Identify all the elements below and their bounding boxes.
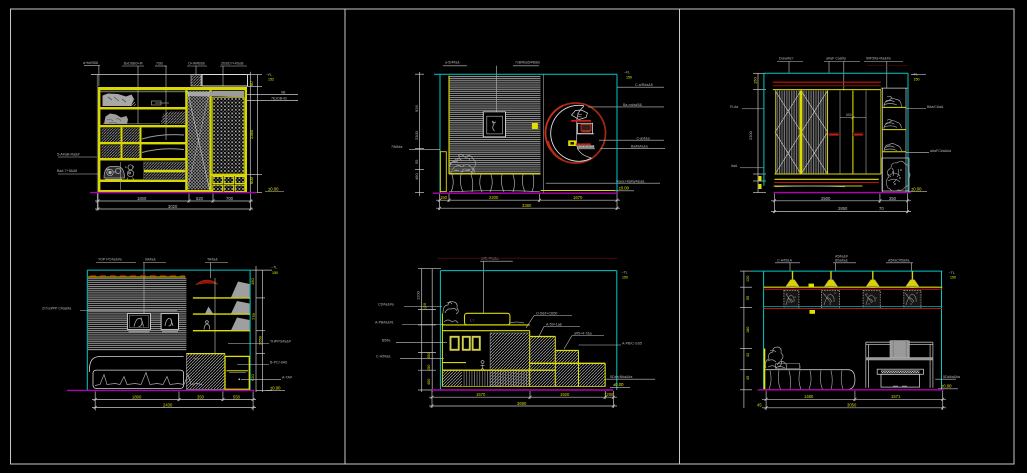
svg-text:700: 700 xyxy=(226,196,234,201)
svg-text:a#aF Ca&#y: a#aF Ca&#y xyxy=(826,57,846,61)
svg-text:±0.00: ±0.00 xyxy=(911,187,922,192)
svg-text:A-TA#: A-TA# xyxy=(282,375,292,379)
svg-text:42: 42 xyxy=(746,353,750,357)
svg-text:150: 150 xyxy=(440,195,448,200)
svg-text:O-5&#+CB5F: O-5&#+CB5F xyxy=(536,311,558,315)
svg-text:150: 150 xyxy=(950,276,956,280)
svg-text:ZBSD?+#SuB: ZBSD?+#SuB xyxy=(221,62,244,66)
svg-text:THPPG#a&#: THPPG#a&# xyxy=(270,340,291,344)
svg-text:1570: 1570 xyxy=(476,392,486,397)
svg-text:±0.00: ±0.00 xyxy=(619,185,630,190)
svg-text:1.7: 1.7 xyxy=(470,319,475,323)
svg-text:9A#a&: 9A#a& xyxy=(145,258,156,262)
svg-text:5#F5#a+#a&#a: 5#F5#a+#a&#a xyxy=(866,57,891,61)
svg-text:350: 350 xyxy=(197,394,205,399)
svg-text:2300: 2300 xyxy=(748,130,753,140)
svg-text:926: 926 xyxy=(414,105,419,112)
svg-text:350: 350 xyxy=(889,196,897,201)
svg-text:150: 150 xyxy=(272,271,278,275)
svg-text:C-a/R#a&5: C-a/R#a&5 xyxy=(635,83,653,87)
svg-text:2850: 2850 xyxy=(838,206,848,211)
svg-text:150: 150 xyxy=(914,78,920,82)
svg-text:120: 120 xyxy=(746,276,750,282)
svg-text:(200: (200 xyxy=(605,392,614,397)
svg-text:9B: 9B xyxy=(281,91,286,95)
svg-text:TOP PC#a&#a: TOP PC#a&#a xyxy=(98,258,122,262)
svg-text:7xB#Ba5/#B&B: 7xB#Ba5/#B&B xyxy=(515,61,540,65)
svg-text:Ba-m#a#5&: Ba-m#a#5& xyxy=(623,103,643,107)
svg-text:5/axx+#a#a/4&a&: 5/axx+#a#a/4&a& xyxy=(616,179,645,183)
svg-text:2300: 2300 xyxy=(414,130,419,140)
svg-text:460: 460 xyxy=(414,173,419,180)
svg-text:150: 150 xyxy=(250,278,255,285)
svg-text:±0.00: ±0.00 xyxy=(270,385,281,390)
svg-text:~FL: ~FL xyxy=(624,71,630,75)
svg-text:O+W#BSb: O+W#BSb xyxy=(188,62,205,66)
svg-text:1200: 1200 xyxy=(416,290,421,300)
svg-text:2500: 2500 xyxy=(821,196,831,201)
svg-text:Ba#a#a&a: Ba#a#a&a xyxy=(631,145,648,149)
svg-text:3050: 3050 xyxy=(847,403,857,408)
svg-text:70: 70 xyxy=(879,206,884,211)
svg-text:C-A#5&A: C-A#5&A xyxy=(777,258,793,262)
svg-text:#a&: #a& xyxy=(731,164,738,168)
svg-text:CD#a&#a: CD#a&#a xyxy=(378,303,394,307)
svg-text:~TL: ~TL xyxy=(271,266,277,270)
svg-text:Drew#a?: Drew#a? xyxy=(779,57,793,61)
svg-text:±0.00: ±0.00 xyxy=(941,384,952,389)
svg-text:7SB: 7SB xyxy=(156,62,163,66)
svg-text:55: 55 xyxy=(414,159,419,164)
svg-text:1571: 1571 xyxy=(891,394,901,399)
svg-text:C-a/4&a: C-a/4&a xyxy=(637,136,650,140)
svg-text:±0.00: ±0.00 xyxy=(268,187,279,192)
svg-text:600: 600 xyxy=(846,113,852,117)
svg-text:2350: 2350 xyxy=(249,129,254,139)
svg-text:45: 45 xyxy=(746,376,750,380)
svg-text:7W8#a: 7W8#a xyxy=(391,145,402,149)
svg-text:3380: 3380 xyxy=(522,203,532,208)
svg-text:2200: 2200 xyxy=(489,195,499,200)
svg-text:2/7xx#PP C#a&#a: 2/7xx#PP C#a&#a xyxy=(42,306,71,310)
svg-text:1670: 1670 xyxy=(573,195,583,200)
svg-text:1920: 1920 xyxy=(560,392,570,397)
svg-text:45: 45 xyxy=(757,403,762,408)
svg-text:C-A5#a&: C-A5#a& xyxy=(376,355,391,359)
svg-text:3020: 3020 xyxy=(168,204,178,209)
svg-text:TA#a&: TA#a& xyxy=(207,258,218,262)
svg-text:1800: 1800 xyxy=(132,394,142,399)
svg-text:550: 550 xyxy=(233,394,241,399)
svg-text:FL#a: FL#a xyxy=(730,105,738,109)
svg-text:150: 150 xyxy=(622,276,628,280)
svg-text:520: 520 xyxy=(196,196,204,201)
svg-text:152: 152 xyxy=(268,78,274,82)
svg-text:B5a#a&: B5a#a& xyxy=(835,258,848,262)
svg-text:1480: 1480 xyxy=(804,394,814,399)
svg-text:~TL: ~TL xyxy=(621,271,627,275)
svg-text:55: 55 xyxy=(746,296,750,300)
svg-text:A5#aC#5&#a: A5#aC#5&#a xyxy=(888,258,909,262)
svg-text:a#aFC#a&#a: a#aFC#a&#a xyxy=(930,149,951,153)
svg-text:5D#a:B#a&#a: 5D#a:B#a&#a xyxy=(610,375,632,379)
svg-text:B#a/C#a&: B#a/C#a& xyxy=(927,105,944,109)
svg-text:150: 150 xyxy=(626,76,632,80)
svg-text:2430: 2430 xyxy=(163,402,173,407)
svg-text:Ba#-7+5&#8: Ba#-7+5&#8 xyxy=(57,169,77,173)
svg-text:150: 150 xyxy=(753,77,758,84)
svg-text:B5#a: B5#a xyxy=(382,339,390,343)
svg-text:A-PB/C-SS5: A-PB/C-SS5 xyxy=(622,341,642,345)
svg-text:3690: 3690 xyxy=(517,401,527,406)
svg-text:150: 150 xyxy=(427,365,431,371)
svg-text:450: 450 xyxy=(427,379,431,385)
svg-text:a0a: a0a xyxy=(194,357,199,361)
svg-text:5D##a&#a: 5D##a&#a xyxy=(943,375,960,379)
svg-text:620: 620 xyxy=(250,374,255,381)
svg-text:180: 180 xyxy=(746,327,750,333)
svg-text:BxDSB0+#l: BxDSB0+#l xyxy=(124,62,143,66)
svg-text:7ExDB+B: 7ExDB+B xyxy=(271,97,287,101)
svg-text:60: 60 xyxy=(249,81,254,86)
svg-text:5-A#aB+#a&#: 5-A#aB+#a&# xyxy=(57,152,79,156)
svg-text:a#5+4-7&a: a#5+4-7&a xyxy=(574,331,592,335)
svg-text:a+b#SB8: a+b#SB8 xyxy=(83,61,98,65)
svg-text:±0.00: ±0.00 xyxy=(613,382,624,387)
svg-text:(20: (20 xyxy=(423,303,427,309)
svg-text:B-PC/-9A5: B-PC/-9A5 xyxy=(270,361,287,365)
svg-text:778: 778 xyxy=(251,313,256,320)
svg-text:A-59+1a&: A-59+1a& xyxy=(546,322,563,326)
svg-text:A-PB#a&#1: A-PB#a&#1 xyxy=(375,321,394,325)
svg-text:~FL: ~FL xyxy=(266,73,272,77)
svg-text:600: 600 xyxy=(249,176,254,184)
svg-text:~TL: ~TL xyxy=(949,271,955,275)
svg-text:a-5/4#a&: a-5/4#a& xyxy=(445,61,460,65)
svg-text:1800: 1800 xyxy=(137,196,147,201)
